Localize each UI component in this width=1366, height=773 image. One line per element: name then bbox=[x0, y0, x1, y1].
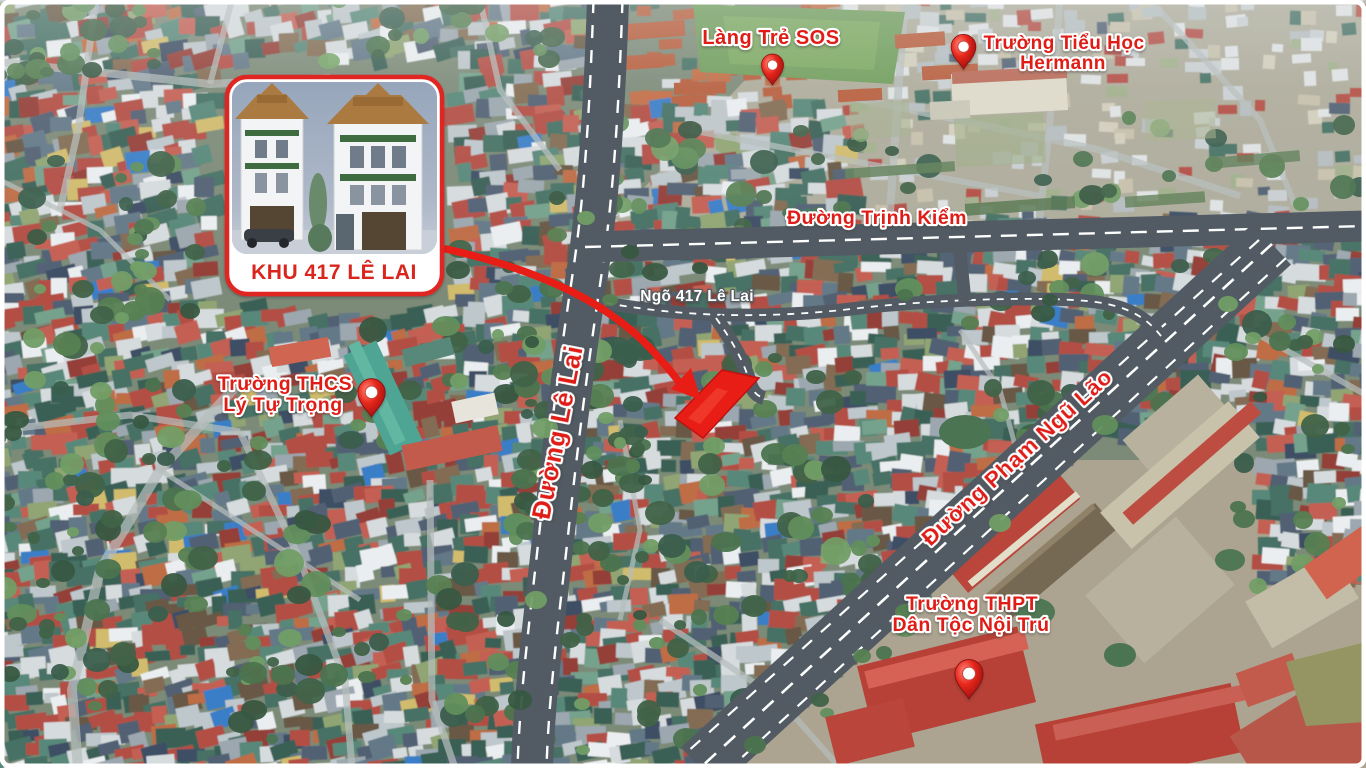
svg-text:Hermann: Hermann bbox=[1020, 53, 1106, 74]
svg-text:KHU 417 LÊ LAI: KHU 417 LÊ LAI bbox=[251, 260, 417, 284]
svg-text:Dân Tộc Nội Trú: Dân Tộc Nội Trú bbox=[892, 614, 1049, 636]
svg-text:Trường THPT: Trường THPT bbox=[906, 593, 1038, 615]
svg-text:Đường Trịnh Kiểm: Đường Trịnh Kiểm bbox=[787, 207, 967, 229]
svg-text:Lý Tự Trọng: Lý Tự Trọng bbox=[223, 394, 342, 416]
svg-text:Làng Trẻ SOS: Làng Trẻ SOS bbox=[702, 27, 839, 49]
svg-text:Trường THCS: Trường THCS bbox=[218, 373, 352, 395]
svg-text:Trường Tiểu Học: Trường Tiểu Học bbox=[983, 33, 1144, 54]
svg-text:Ngõ 417 Lê Lai: Ngõ 417 Lê Lai bbox=[640, 288, 754, 305]
